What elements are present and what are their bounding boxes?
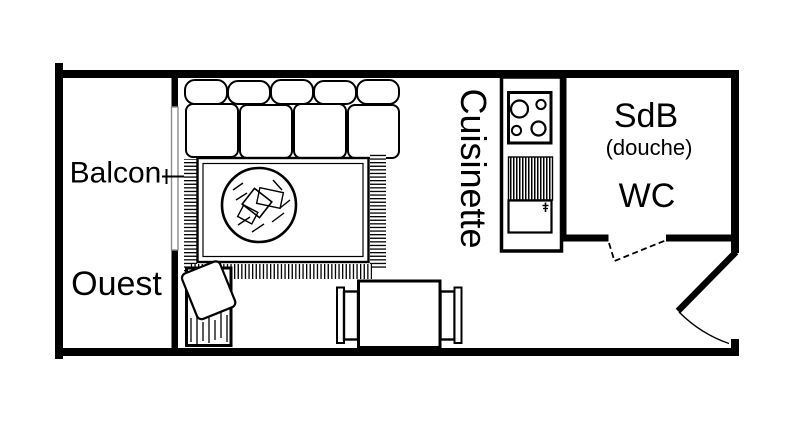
balcony-partition-top [172, 77, 179, 107]
sofa-seat-cushion [240, 105, 292, 158]
balcony-window [172, 107, 179, 250]
sink-drainer [509, 157, 553, 200]
dining-table [359, 281, 441, 348]
rug-fringe-left [184, 159, 197, 280]
bathroom-bottom-wall-left [560, 235, 609, 242]
round-table-top [222, 168, 296, 242]
chair-back-right [455, 288, 462, 344]
entry-door [678, 252, 736, 344]
sofa-back-cushion [185, 80, 227, 104]
bathroom-door-swing [609, 240, 667, 261]
sofa-back-cushion [228, 81, 270, 104]
sofa-back-cushion [357, 80, 399, 104]
label-bathroom-note: (douche) [606, 135, 693, 160]
sofa-back-cushion [314, 81, 356, 104]
chair-seat-right [441, 292, 455, 340]
label-toilet: WC [619, 177, 676, 215]
kitchenette-unit [502, 77, 562, 251]
sofa-seat-cushion [348, 105, 399, 158]
entry-door-swing-arc [679, 312, 729, 344]
sofa-seat-cushion [294, 104, 346, 158]
armchair [180, 260, 236, 346]
label-bathroom: SdB [614, 97, 678, 135]
bathroom-bottom-wall-right [666, 235, 739, 242]
wall-top [55, 70, 739, 78]
entry-door-leaf [678, 252, 736, 311]
label-orientation: Ouest [71, 265, 162, 303]
wall-left [55, 63, 63, 359]
sofa-back-cushion [271, 80, 313, 104]
floorplan-drawing: Balcon Ouest Cuisinette SdB (douche) WC [0, 0, 800, 428]
wall-right-bottom-stub [731, 339, 739, 352]
label-kitchenette: Cuisinette [453, 88, 494, 248]
balcony-partition-bottom [172, 250, 179, 348]
wall-right [731, 70, 739, 253]
sofa [185, 80, 399, 158]
round-table [222, 168, 296, 242]
chair-seat-left [344, 292, 358, 340]
floorplan-page: Balcon Ouest Cuisinette SdB (douche) WC [0, 0, 800, 428]
label-balcony: Balcon [70, 157, 162, 190]
rug-fringe-right [370, 154, 386, 270]
sofa-seat-cushion [186, 104, 238, 157]
dining-set [337, 281, 462, 348]
wall-bottom [55, 348, 739, 356]
